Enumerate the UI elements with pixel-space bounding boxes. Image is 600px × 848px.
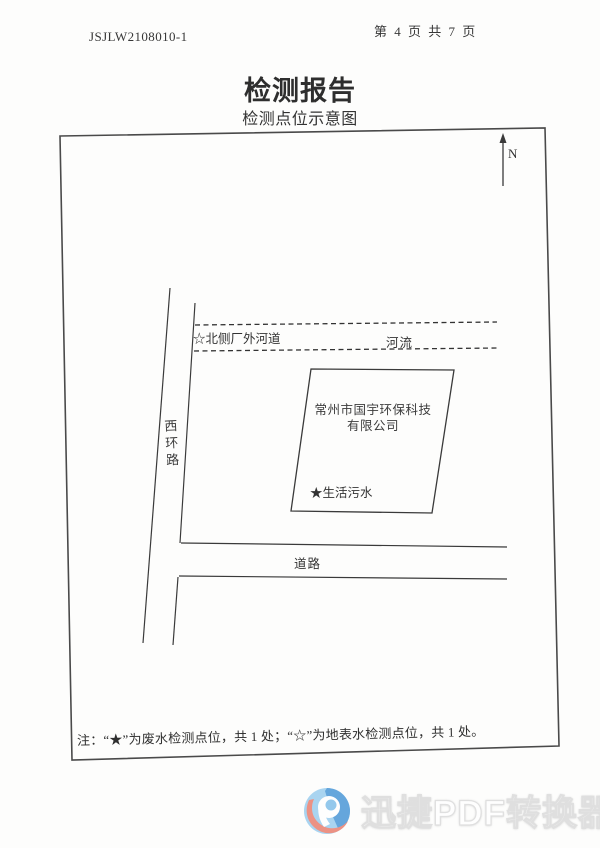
- west-road-right-edge-lower: [173, 577, 178, 645]
- company-name-label: 常州市国宇环保科技 有限公司: [300, 402, 446, 434]
- river-label: 河流: [386, 332, 413, 351]
- surface-water-point-label: ☆北侧厂外河道: [193, 328, 281, 347]
- west-ring-road-label: 西环路: [160, 419, 182, 471]
- north-arrow-head: [500, 133, 507, 143]
- company-name-line2: 有限公司: [300, 418, 446, 434]
- scanned-report-page: JSJLW2108010-1 第 4 页 共 7 页 检测报告 检测点位示意图 …: [0, 0, 600, 848]
- river-dashed-line-top: [195, 322, 497, 325]
- pdf-converter-watermark: 迅捷PDF转换器: [303, 785, 600, 836]
- company-name-line1: 常州市国宇环保科技: [300, 402, 446, 418]
- road-top-edge: [181, 543, 507, 547]
- north-label: N: [508, 146, 517, 162]
- road-bottom-edge: [179, 576, 507, 579]
- wastewater-point-label: ★生活污水: [310, 482, 373, 501]
- watermark-text: 迅捷PDF转换器: [361, 785, 600, 836]
- river-dashed-line-bottom: [194, 348, 497, 351]
- road-label: 道路: [294, 553, 321, 572]
- xunjie-pdf-converter-logo-icon: [303, 787, 351, 835]
